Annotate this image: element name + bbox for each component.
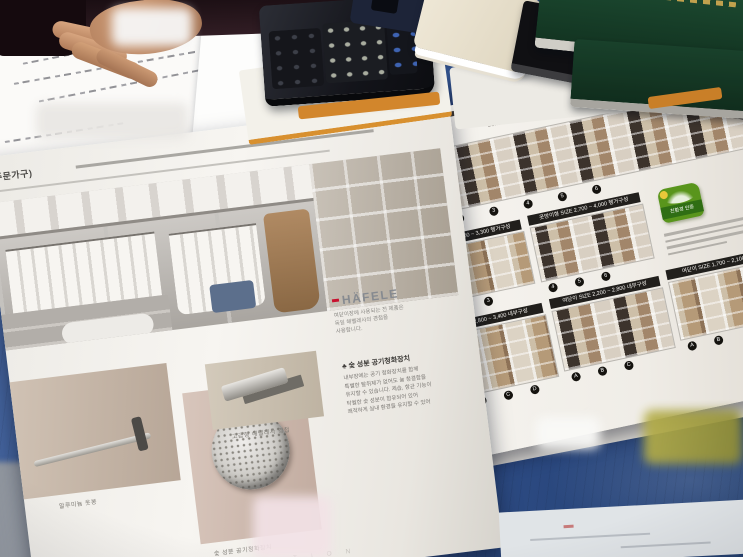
collection-letter: N xyxy=(345,548,353,556)
blur-redaction-olive xyxy=(644,410,742,464)
blur-redaction xyxy=(112,8,192,46)
red-pen-mark xyxy=(564,525,574,529)
gold-spine-lettering xyxy=(586,0,736,7)
blur-redaction xyxy=(253,496,331,557)
section-interior-3: 여닫이 SIZE 1,700 ~ 2,100 내부구성 AB xyxy=(665,246,743,353)
marker-badge: D xyxy=(530,384,541,395)
marker-badge: 3 xyxy=(489,206,500,217)
photo-catalog-on-desk: High quality natural wardrobe in comfort… xyxy=(0,0,743,557)
blur-redaction xyxy=(536,417,600,449)
clothes-rail xyxy=(33,432,151,467)
aluminum-rail-photo xyxy=(10,363,181,499)
hafele-red-mark-icon xyxy=(332,299,339,303)
marker-badge: 6 xyxy=(601,271,612,282)
blue-storage-bin xyxy=(209,280,256,313)
section-interior-2: 여닫이 SIZE 2,200 ~ 2,800 내부구성 ABC xyxy=(549,276,676,383)
marker-badge: C xyxy=(503,390,514,401)
marker-badge: A xyxy=(571,371,582,382)
calculator-number-keys xyxy=(322,19,388,83)
hinge-photo xyxy=(205,351,324,430)
marker-badge: B xyxy=(597,366,608,377)
marker-badge: B xyxy=(713,335,724,346)
hafele-logo-text: HÄFELE xyxy=(341,286,399,307)
clover-icon: ♣ xyxy=(342,363,347,371)
marker-badge: A xyxy=(687,341,698,352)
eco-certification-badge: 친환경 인증 xyxy=(657,182,705,224)
calculator-dark-keys xyxy=(268,28,324,89)
badge-sun-icon xyxy=(659,190,668,199)
left-page-headline: (주문가구) xyxy=(0,166,33,184)
badge-text: 친환경 인증 xyxy=(660,199,704,219)
marker-badge: 5 xyxy=(574,277,585,288)
charcoal-feature-block: ♣ 숯 성분 공기청화장치 내부장에는 공기 청화장치를 함께특별한 탈취제가 … xyxy=(342,346,480,417)
catalog-left-page: (주문가구) 알루미늄 옷봉 숯 성분 공기정화장치 고급형 해펠레사 경첩 H… xyxy=(0,101,503,557)
marker-badge: 5 xyxy=(557,191,568,202)
marker-badge: 3 xyxy=(483,296,494,307)
marker-badge: 4 xyxy=(548,282,559,293)
marker-badge: 4 xyxy=(523,199,534,210)
section-hanger-2: 옷방이형 SIZE 2,700 ~ 4,000 행거구성 456 xyxy=(527,192,655,294)
blur-redaction xyxy=(36,103,188,139)
rail-caption: 알루미늄 옷봉 xyxy=(58,497,97,511)
marker-badge: 6 xyxy=(591,184,602,195)
marker-badge: C xyxy=(624,360,635,371)
hanging-brown-coat xyxy=(263,209,321,314)
